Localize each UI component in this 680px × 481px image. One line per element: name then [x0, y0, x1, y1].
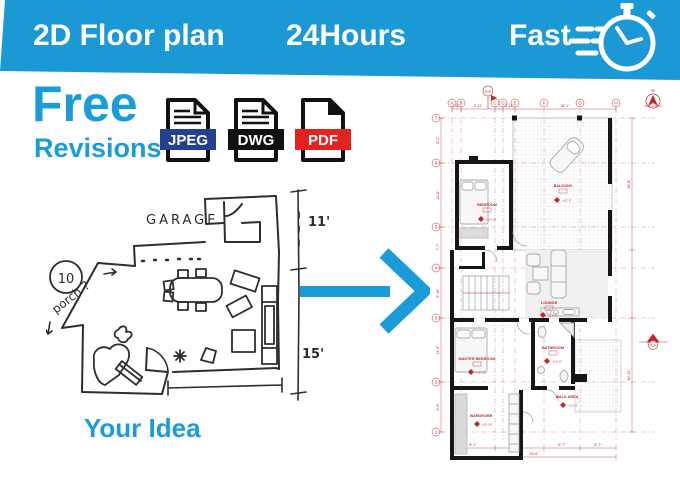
dim-bottom-3: 8'-7"	[558, 443, 566, 447]
svg-text:+12'-10": +12'-10"	[485, 218, 496, 222]
room-label-wardrobe: WARDROBE +12'-10"	[470, 414, 493, 427]
stairs	[463, 276, 509, 310]
grid-row-5: 5	[435, 225, 438, 230]
dwg-file-icon: DWG	[227, 97, 285, 163]
svg-text:BEDROOM: BEDROOM	[477, 203, 497, 207]
svg-text:+12'-0": +12'-0"	[548, 314, 557, 318]
cad-grid-row-bubbles: 7 6 5 4 3 2 1	[432, 114, 440, 436]
grid-col-e: E	[513, 101, 516, 106]
svg-text:+12'-0": +12'-0"	[562, 199, 571, 203]
svg-text:BALCONY: BALCONY	[554, 184, 573, 188]
north-label: N	[651, 88, 654, 93]
grid-row-1: 1	[435, 430, 438, 435]
section-marker-right: A.A	[639, 334, 667, 350]
north-arrow-icon: N	[644, 88, 662, 108]
sketch-furniture	[94, 269, 277, 385]
pdf-file-icon: PDF	[294, 97, 352, 163]
svg-text:MASTER BEDROOM: MASTER BEDROOM	[459, 357, 496, 361]
svg-text:LOUNGE: LOUNGE	[541, 301, 558, 305]
grid-row-2: 2	[435, 380, 438, 385]
room-label-bathroom: BATHROOM +12'-0"	[542, 346, 564, 364]
dim-top-4: 18'-1"	[560, 104, 570, 108]
dim-top-3: 3'-11"	[505, 104, 515, 108]
grid-col-b: B	[459, 101, 462, 106]
grid-col-f: F	[543, 101, 546, 106]
grid-row-3: 3	[435, 316, 438, 321]
pdf-label: PDF	[308, 132, 338, 149]
dim-left-6: 9'-6"	[436, 403, 440, 411]
grid-row-7: 7	[435, 116, 438, 121]
dim-bottom-total: 29'-8"	[529, 452, 539, 456]
sketch-dim-15: 15'	[302, 347, 324, 362]
dwg-label: DWG	[238, 132, 275, 149]
dim-right-2: 16'-11"	[627, 369, 631, 381]
dim-top-2: 5'-11"	[474, 104, 484, 108]
dim-left-2: 11'-8"	[436, 190, 440, 200]
grid-col-c: C	[493, 101, 497, 106]
jpeg-label: JPEG	[168, 132, 208, 149]
svg-text:WALK AREA: WALK AREA	[556, 395, 579, 399]
grid-row-4: 4	[435, 266, 438, 271]
grid-col-h: H	[614, 101, 617, 106]
svg-text:WARDROBE: WARDROBE	[470, 414, 493, 418]
dim-bottom-1: 8'-1"	[469, 443, 477, 447]
svg-text:BATHROOM: BATHROOM	[542, 346, 564, 350]
dim-left-5: 11'-6"	[436, 345, 440, 355]
banner-title: 2D Floor plan	[33, 19, 225, 53]
sketch-garage-label: GARAGE	[146, 213, 218, 228]
offer-subline: Revisions	[34, 133, 162, 164]
banner-fast-label: Fast	[509, 19, 571, 53]
dim-bottom-4: 8'-7"	[594, 443, 602, 447]
dim-left-1: 8'-2"	[436, 136, 440, 144]
svg-text:+12'-0": +12'-0"	[552, 360, 561, 364]
svg-text:+12'-10": +12'-10"	[481, 423, 492, 427]
transform-arrow-icon	[300, 245, 430, 335]
offer-headline: Free	[32, 78, 138, 131]
section-right-label: A.A	[650, 344, 656, 348]
dim-left-3: 7'-7"	[436, 243, 440, 251]
grid-row-6: 6	[435, 161, 438, 166]
svg-text:+12'-10": +12'-10"	[475, 371, 486, 375]
grid-col-g: G	[578, 101, 582, 106]
dim-top-1: 2'-8"	[452, 104, 460, 108]
cad-floorplan: A B C D E F G H 7 6 5 4 3 2	[425, 82, 680, 481]
gig-poster: 2D Floor plan 24Hours Fast Free Revision…	[0, 0, 680, 481]
dim-right-1: 18'-8"	[627, 179, 631, 189]
stopwatch-icon	[568, 1, 668, 75]
banner-turnaround: 24Hours	[286, 19, 406, 53]
svg-text:+12'-0": +12'-0"	[568, 404, 577, 408]
section-top-label: B.B	[485, 90, 491, 94]
sketch-caption: Your Idea	[84, 413, 201, 444]
dim-left-4: 8'-10"	[436, 288, 440, 298]
sketch-circle-number: 10	[58, 272, 75, 287]
sketch-dim-11: 11'	[308, 215, 330, 230]
jpeg-file-icon: JPEG	[159, 97, 217, 163]
